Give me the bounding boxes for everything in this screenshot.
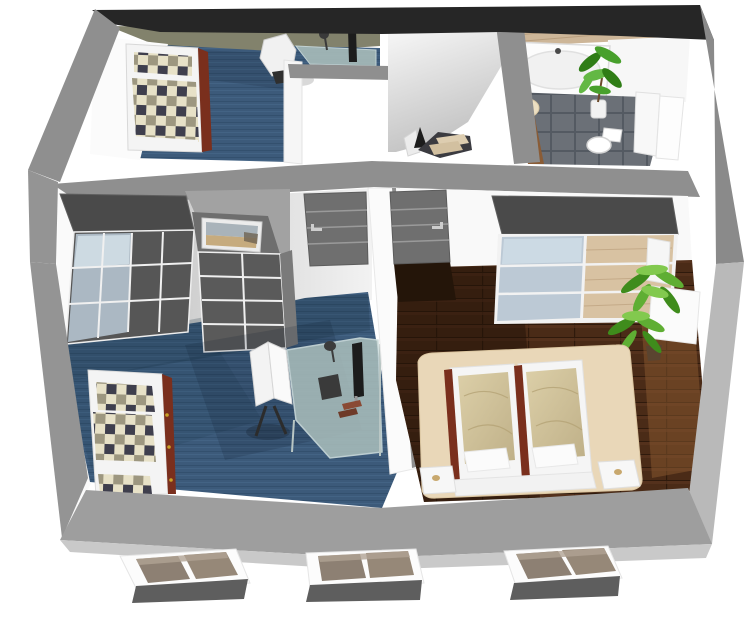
- right-cut-wall-upper: [700, 5, 744, 264]
- bed-pillow-plaid: [134, 52, 192, 76]
- bed-blanket-plaid: [93, 412, 156, 462]
- wardrobe-top: [492, 196, 678, 234]
- tub-drain: [555, 48, 561, 54]
- single-bed-1[interactable]: [126, 44, 212, 152]
- single-bed-2[interactable]: [88, 370, 176, 496]
- glass-shine: [502, 238, 582, 264]
- wardrobe-top: [60, 194, 194, 232]
- bed-foot-white: [96, 460, 157, 474]
- floorplan-render: [0, 0, 750, 621]
- pillow-left: [464, 448, 510, 472]
- dormer-window-left[interactable]: [120, 549, 250, 603]
- room-master-bedroom: [390, 188, 710, 502]
- dormer-window-right[interactable]: [504, 546, 622, 600]
- nightstand-decor: [614, 469, 622, 475]
- shower-partition[interactable]: [634, 92, 660, 156]
- office-door[interactable]: [304, 192, 368, 266]
- plant-pot: [591, 100, 606, 118]
- toilet-bowl: [587, 137, 611, 153]
- shower-partition[interactable]: [656, 96, 684, 160]
- bed-foot-plaid: [98, 474, 152, 494]
- room-kids-office: [60, 188, 398, 508]
- monitor: [352, 342, 364, 398]
- bed-pillow-plaid: [96, 382, 155, 412]
- bathroom-back-white: [604, 36, 690, 102]
- dormer-window-center[interactable]: [306, 549, 424, 602]
- desk-pad: [318, 374, 342, 400]
- pillow-right: [532, 444, 578, 468]
- floorplan-svg: [0, 0, 750, 621]
- door-threshold-dark: [394, 262, 456, 302]
- nightstand-decor: [432, 475, 440, 481]
- drawer-line: [202, 300, 283, 301]
- bed-blanket-plaid: [132, 78, 199, 142]
- brass-dot: [169, 478, 173, 482]
- monitor: [348, 30, 357, 62]
- nook-south-wall-cut: [288, 64, 392, 80]
- double-bed[interactable]: [418, 345, 642, 498]
- office-wardrobe[interactable]: [60, 194, 194, 344]
- door-handle-post: [311, 224, 314, 231]
- left-cut-wall: [28, 170, 58, 264]
- brass-dot: [167, 445, 171, 449]
- room-kids-bedroom: [90, 26, 392, 164]
- door-handle-post: [440, 222, 443, 229]
- brass-dot: [165, 413, 169, 417]
- desk-lamp: [324, 341, 336, 351]
- master-door[interactable]: [390, 190, 450, 264]
